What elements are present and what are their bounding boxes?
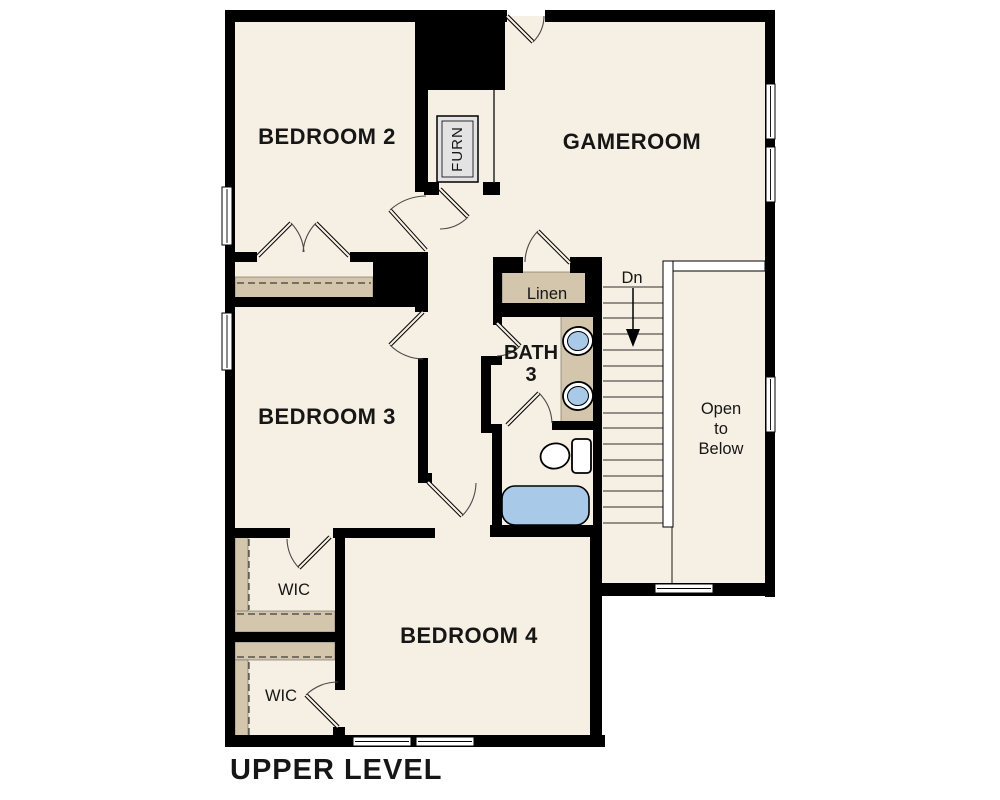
label-bedroom3: BEDROOM 3 xyxy=(258,404,396,429)
window xyxy=(766,84,775,139)
window xyxy=(655,584,713,593)
window xyxy=(222,187,232,245)
label-bedroom2: BEDROOM 2 xyxy=(258,124,396,149)
chase xyxy=(420,22,505,90)
label-bedroom4: BEDROOM 4 xyxy=(400,623,538,648)
furnace-label: FURN xyxy=(449,126,466,172)
bedroom2-closet-shelf xyxy=(235,277,373,298)
floor-plan: FURN BEDROOM 2 GAMEROOM BEDROOM 3 BEDROO… xyxy=(0,0,1000,800)
wic1-shelf-left xyxy=(235,537,248,616)
label-stairs-down: Dn xyxy=(621,269,642,287)
floor-plan-page: FURN BEDROOM 2 GAMEROOM BEDROOM 3 BEDROO… xyxy=(0,0,1000,800)
window xyxy=(416,737,474,746)
label-wic1: WIC xyxy=(278,581,310,599)
label-open-below-3: Below xyxy=(699,440,744,458)
label-bath3-line2: 3 xyxy=(525,364,536,386)
window xyxy=(353,737,411,746)
window xyxy=(222,313,232,370)
label-gameroom: GAMEROOM xyxy=(563,129,701,154)
label-open-below-1: Open xyxy=(701,400,741,418)
window xyxy=(766,377,775,432)
window xyxy=(766,147,775,202)
plan-title: UPPER LEVEL xyxy=(230,754,442,786)
label-linen: Linen xyxy=(527,285,567,303)
wic2-shelf-left xyxy=(235,660,248,737)
furnace-unit: FURN xyxy=(437,116,478,182)
label-wic2: WIC xyxy=(265,687,297,705)
label-open-below-2: to xyxy=(714,420,728,438)
bathtub-fixture xyxy=(502,486,589,525)
label-bath3-line1: BATH xyxy=(504,342,558,364)
